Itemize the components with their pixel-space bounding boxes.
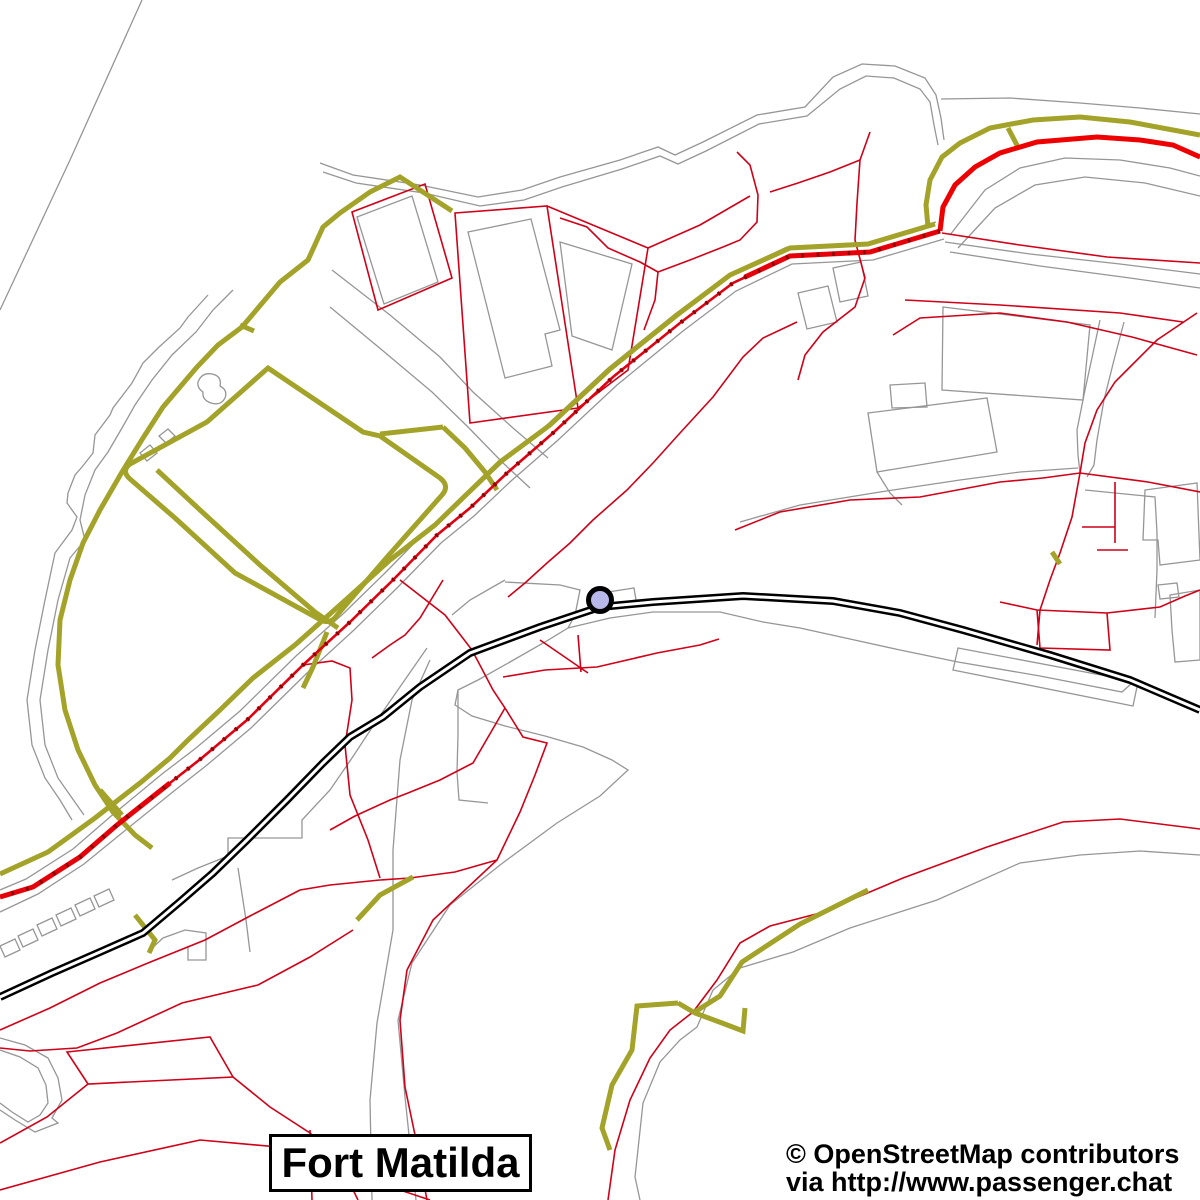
gray-boundaries-path	[37, 918, 57, 936]
gray-boundaries-path	[468, 219, 560, 378]
gray-boundaries-path	[18, 929, 38, 947]
gray-boundaries-path	[398, 628, 628, 1200]
gray-boundaries-path	[452, 580, 505, 615]
gray-boundaries-path	[40, 290, 233, 815]
gray-boundaries-path	[877, 472, 902, 505]
red-paths-path	[648, 196, 750, 248]
red-paths-path	[503, 639, 719, 677]
gray-boundaries-path	[370, 660, 430, 1200]
gray-boundaries-path	[740, 468, 1078, 522]
attribution: © OpenStreetMap contributors via http://…	[786, 1140, 1179, 1196]
red-paths-path	[770, 160, 860, 192]
gray-boundaries-path	[0, 239, 944, 912]
main-road-oneway-marks-path	[0, 231, 940, 897]
gray-boundaries-path	[150, 930, 206, 960]
attribution-line2: via http://www.passenger.chat	[786, 1168, 1179, 1196]
red-paths-path	[67, 1037, 233, 1084]
gray-boundaries-path	[560, 242, 632, 350]
red-primary-roads-path	[940, 137, 1200, 231]
map-canvas	[0, 0, 1200, 1200]
gray-boundaries-path	[0, 1038, 62, 1132]
gray-boundaries-path	[0, 939, 20, 957]
gray-boundaries-path	[950, 158, 1200, 235]
red-paths-path	[0, 930, 353, 1051]
red-paths-path	[893, 313, 1197, 355]
red-paths	[0, 132, 1200, 1200]
red-paths-path	[735, 473, 1200, 530]
gray-boundaries-path	[950, 252, 1200, 288]
main-road-centerline-path	[0, 231, 940, 897]
gray-boundaries-path	[94, 889, 114, 907]
olive-tracks-path	[0, 224, 935, 874]
place-label-box: Fort Matilda	[269, 1134, 532, 1192]
olive-tracks-path	[678, 1003, 745, 1031]
red-paths-path	[0, 890, 300, 1030]
gray-boundaries-path	[941, 98, 1200, 114]
main-road-centerline	[0, 231, 940, 897]
gray-boundaries-path	[27, 295, 208, 820]
gray-boundaries-path	[798, 286, 837, 329]
gray-boundaries-path	[357, 196, 438, 304]
gray-boundaries-path	[75, 898, 95, 916]
olive-tracks-path	[240, 325, 254, 331]
red-primary-roads	[0, 137, 1200, 897]
gray-boundaries-path	[1085, 490, 1157, 618]
gray-boundaries-path	[890, 383, 927, 408]
red-paths-path	[455, 206, 578, 423]
gray-boundaries-path	[198, 374, 226, 404]
main-road-oneway-marks	[0, 231, 940, 897]
gray-boundaries-path	[1143, 483, 1200, 565]
red-paths-path	[658, 152, 758, 272]
gray-boundaries-path	[958, 177, 1200, 248]
gray-boundaries-path	[172, 648, 427, 880]
gray-boundaries-path	[942, 307, 1090, 400]
gray-boundaries-path	[56, 908, 76, 926]
gray-boundaries-path	[1158, 583, 1179, 599]
map-viewport: Fort Matilda © OpenStreetMap contributor…	[0, 0, 1200, 1200]
olive-tracks-path	[58, 177, 452, 848]
gray-boundaries-path	[868, 398, 997, 472]
attribution-line1: © OpenStreetMap contributors	[786, 1140, 1179, 1168]
place-label-text: Fort Matilda	[282, 1139, 520, 1187]
gray-boundaries-path	[945, 242, 1200, 274]
olive-tracks-path	[357, 877, 413, 920]
gray-boundaries-path	[0, 1050, 48, 1122]
gray-boundaries-path	[0, 0, 142, 310]
olive-tracks-path	[1052, 552, 1060, 564]
olive-tracks-path	[157, 470, 338, 628]
gray-boundaries-path	[238, 868, 250, 952]
red-paths-path	[1080, 313, 1197, 473]
olive-tracks-path	[693, 890, 868, 1013]
gray-boundaries-path	[1087, 322, 1124, 477]
olive-tracks	[0, 117, 1200, 1150]
railway-station-marker	[589, 589, 612, 612]
